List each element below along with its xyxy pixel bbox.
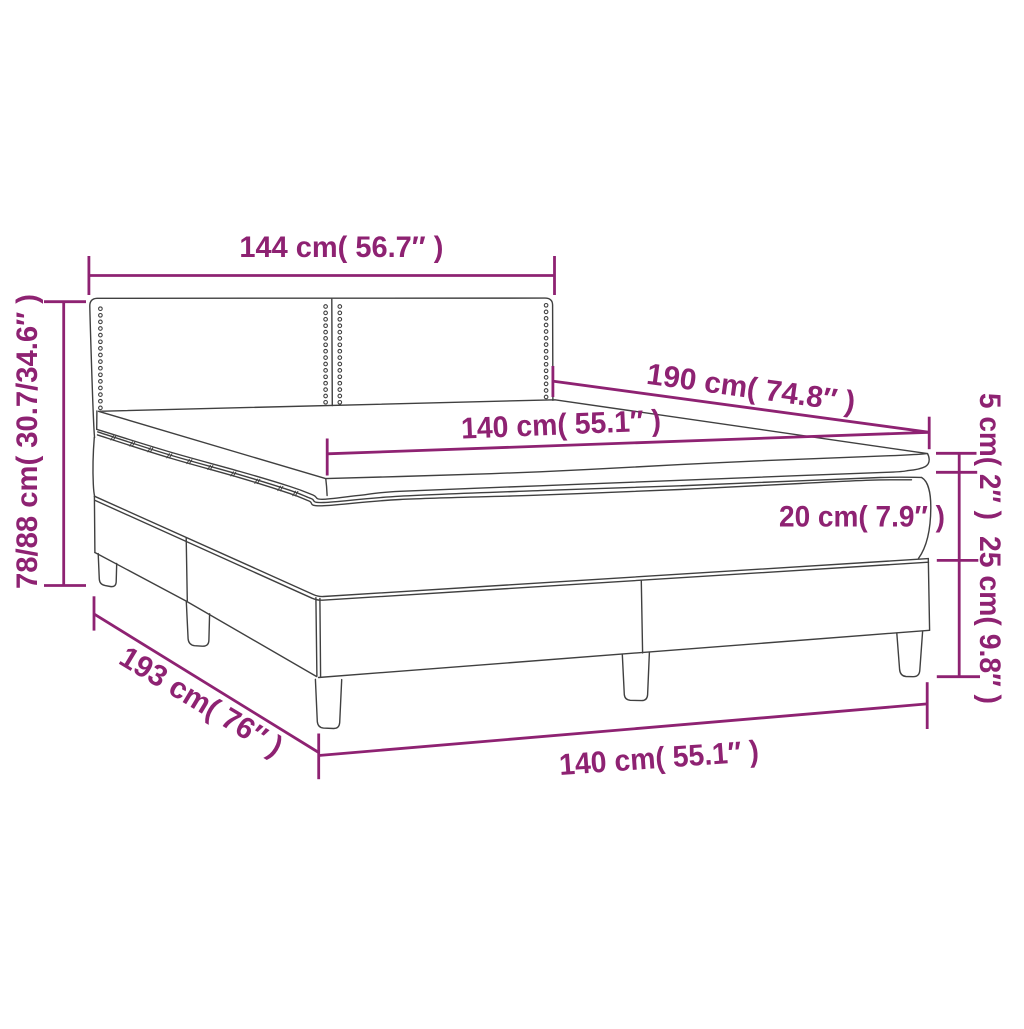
svg-text:5 cm( 2″ ): 5 cm( 2″ ) xyxy=(973,393,1006,520)
svg-text:20 cm( 7.9″ ): 20 cm( 7.9″ ) xyxy=(779,501,945,534)
svg-text:78/88 cm( 30.7/34.6″ ): 78/88 cm( 30.7/34.6″ ) xyxy=(11,294,44,589)
svg-text:25 cm( 9.8″ ): 25 cm( 9.8″ ) xyxy=(973,536,1006,704)
svg-text:144 cm( 56.7″ ): 144 cm( 56.7″ ) xyxy=(239,231,443,264)
